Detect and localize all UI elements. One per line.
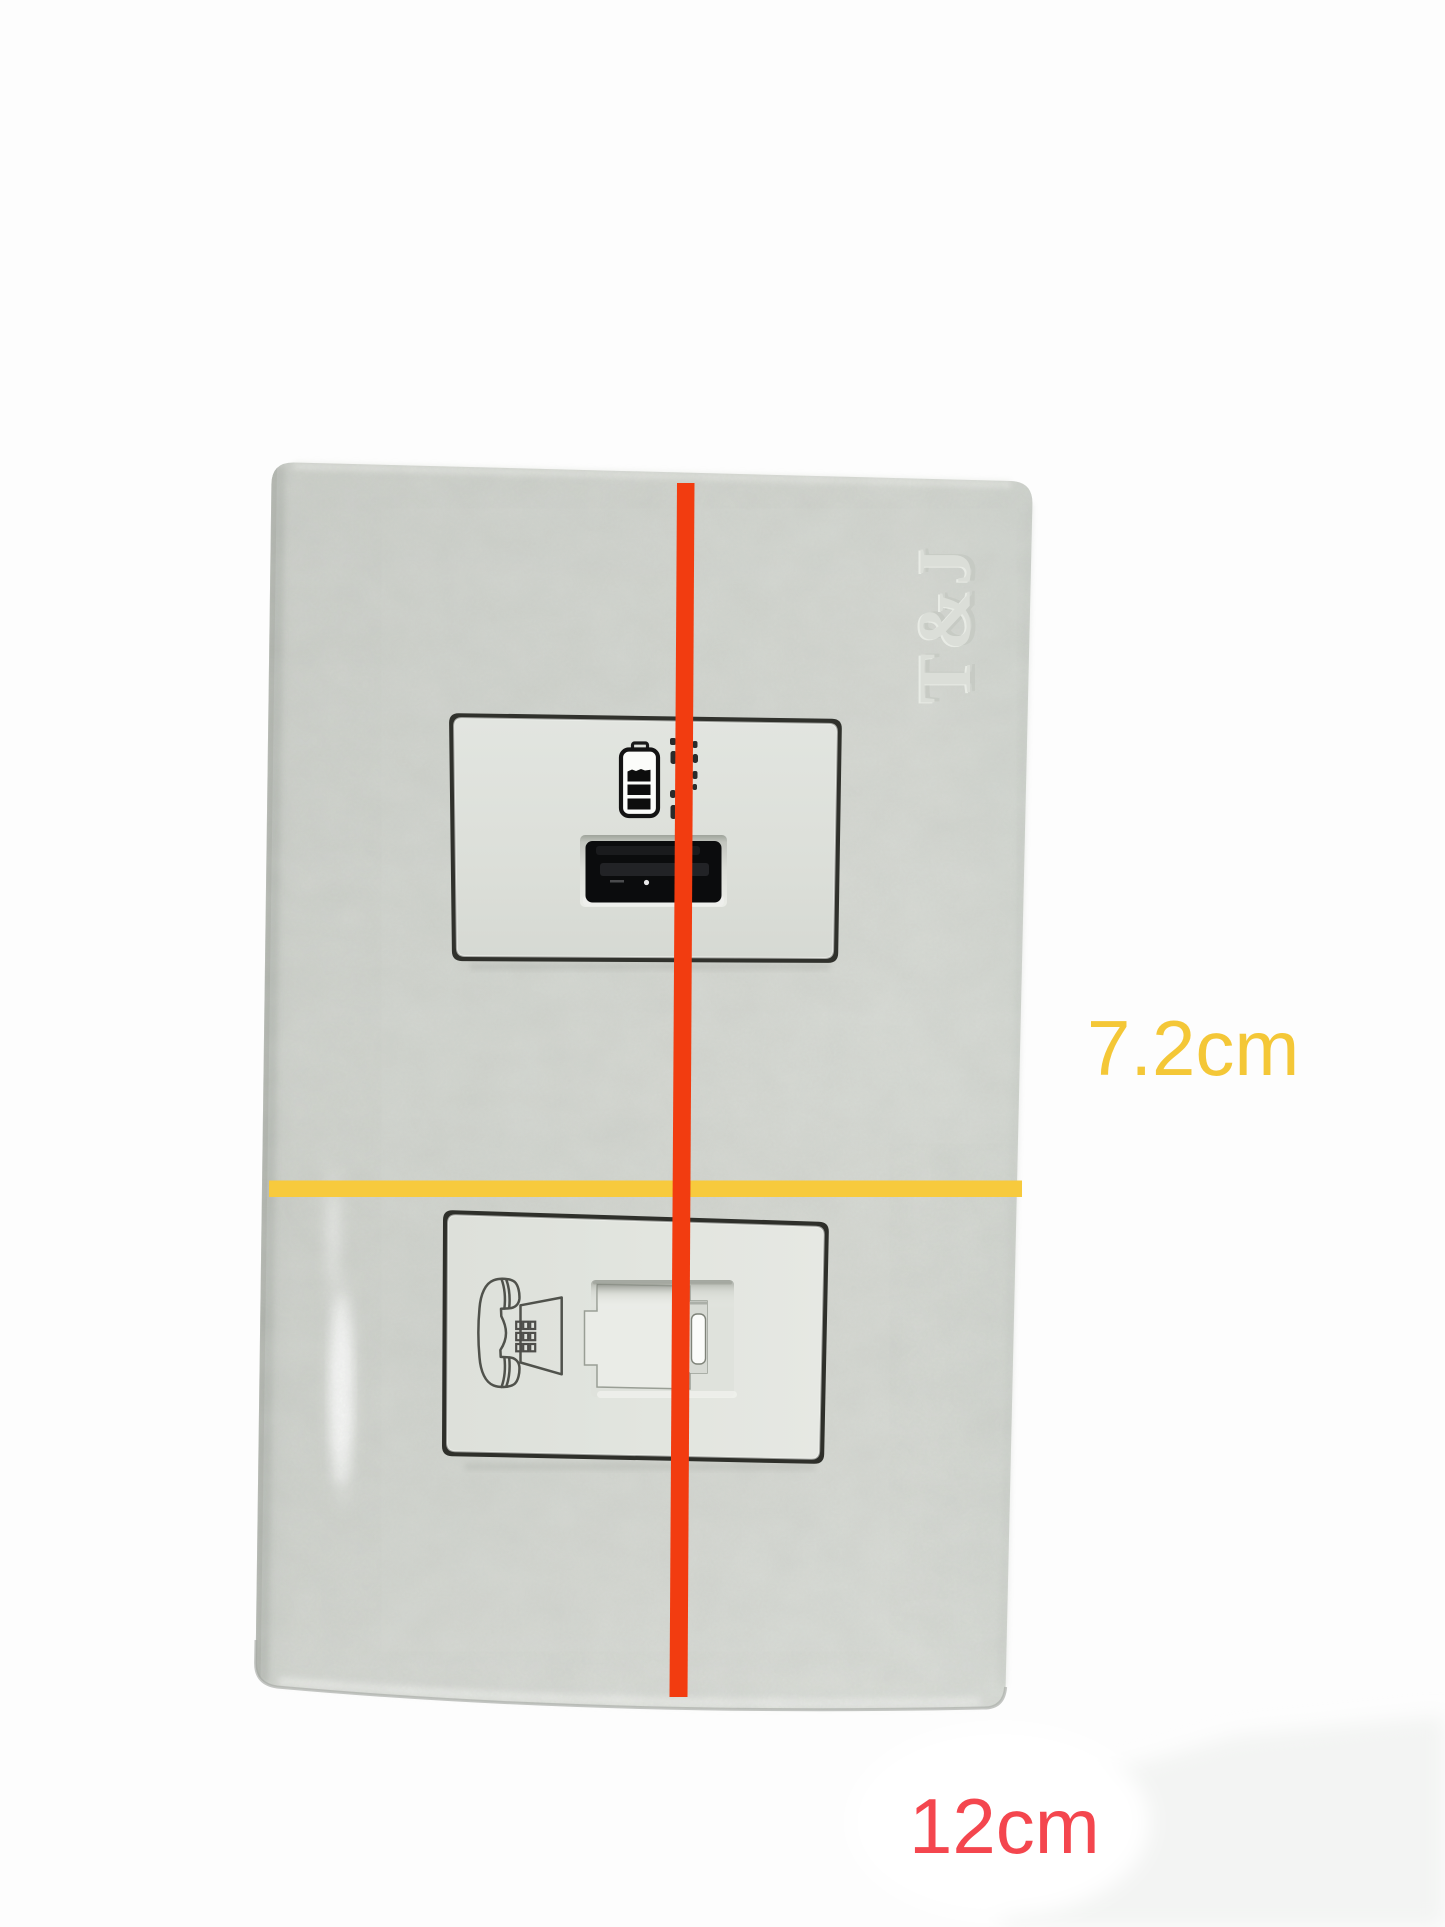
svg-text:7.2cm: 7.2cm (1087, 1004, 1299, 1092)
svg-text:T&J: T&J (904, 545, 987, 704)
svg-text:12cm: 12cm (909, 1782, 1100, 1870)
